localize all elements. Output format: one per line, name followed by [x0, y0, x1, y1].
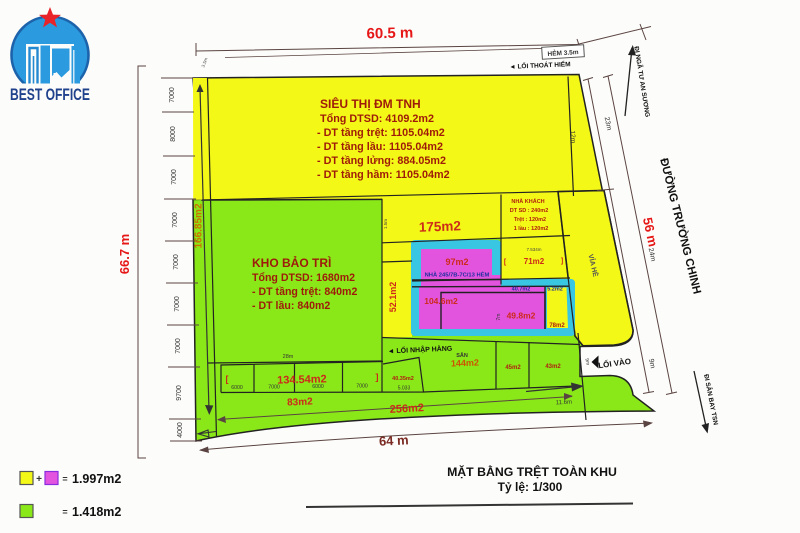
- svg-text:5.033: 5.033: [398, 386, 411, 392]
- svg-text:4000: 4000: [177, 422, 184, 438]
- svg-text:- DT tầng hầm: 1105.04m2: - DT tầng hầm: 1105.04m2: [317, 169, 450, 181]
- svg-text:Tổng DTSD: 1680m2: Tổng DTSD: 1680m2: [252, 272, 355, 284]
- svg-text:6000: 6000: [312, 384, 324, 390]
- svg-text:5.2m2: 5.2m2: [547, 287, 563, 293]
- svg-text:144m2: 144m2: [451, 358, 479, 369]
- svg-text:83m2: 83m2: [287, 396, 313, 408]
- svg-text:NHÀ 245/7B-7C/13 HẺM: NHÀ 245/7B-7C/13 HẺM: [425, 272, 490, 279]
- svg-text:7000: 7000: [174, 296, 181, 312]
- svg-text:9700: 9700: [176, 385, 183, 401]
- svg-text:- DT tầng lửng: 884.05m2: - DT tầng lửng: 884.05m2: [317, 155, 446, 167]
- svg-text:7000: 7000: [175, 338, 182, 354]
- svg-text:+: +: [36, 474, 42, 485]
- svg-text:KHO BẢO TRÌ: KHO BẢO TRÌ: [252, 255, 331, 270]
- svg-text:- DT tầng lầu: 1105.04m2: - DT tầng lầu: 1105.04m2: [317, 141, 443, 153]
- svg-text:7000: 7000: [173, 254, 180, 270]
- svg-text:BEST OFFICE: BEST OFFICE: [10, 86, 90, 104]
- svg-text:64 m: 64 m: [379, 432, 409, 449]
- svg-text:]: ]: [376, 372, 379, 382]
- svg-text:1 lầu : 120m2: 1 lầu : 120m2: [514, 226, 549, 232]
- svg-text:NHÀ KHÁCH: NHÀ KHÁCH: [511, 198, 544, 205]
- svg-text:7000: 7000: [268, 385, 280, 391]
- svg-text:49.8m2: 49.8m2: [507, 311, 536, 321]
- svg-text:28m: 28m: [283, 354, 294, 360]
- svg-text:166.85m2: 166.85m2: [194, 203, 205, 248]
- svg-text:7000: 7000: [169, 87, 176, 103]
- svg-text:- DT tầng trệt: 840m2: - DT tầng trệt: 840m2: [252, 286, 357, 298]
- svg-text:9m: 9m: [583, 358, 590, 366]
- svg-text:175m2: 175m2: [419, 218, 462, 234]
- svg-text:12m: 12m: [569, 130, 577, 143]
- svg-text:[: [: [226, 374, 229, 384]
- svg-text:1.418m2: 1.418m2: [72, 505, 121, 519]
- svg-text:7000: 7000: [356, 384, 368, 390]
- svg-text:104.6m2: 104.6m2: [424, 296, 458, 306]
- svg-text:- DT lầu: 840m2: - DT lầu: 840m2: [252, 300, 330, 312]
- svg-text:7000: 7000: [171, 169, 178, 185]
- svg-text:Tỷ lệ: 1/300: Tỷ lệ: 1/300: [498, 480, 563, 494]
- svg-text:7.534m: 7.534m: [526, 247, 541, 252]
- svg-text:DT SD : 240m2: DT SD : 240m2: [510, 208, 549, 214]
- svg-text:1.997m2: 1.997m2: [72, 472, 121, 486]
- svg-text:Tổng DTSD: 4109.2m2: Tổng DTSD: 4109.2m2: [320, 113, 434, 125]
- svg-text:7000: 7000: [172, 212, 179, 228]
- svg-text:=: =: [62, 507, 67, 517]
- svg-text:=: =: [62, 474, 67, 484]
- svg-text:- DT tầng trệt: 1105.04m2: - DT tầng trệt: 1105.04m2: [317, 127, 445, 139]
- svg-text:8000: 8000: [170, 126, 177, 142]
- svg-text:78m2: 78m2: [549, 323, 565, 329]
- svg-text:52.1m2: 52.1m2: [388, 282, 398, 313]
- svg-text:7m: 7m: [496, 314, 502, 321]
- svg-text:71m2: 71m2: [524, 257, 545, 266]
- svg-text:Trệt : 120m2: Trệt : 120m2: [514, 217, 546, 223]
- svg-text:97m2: 97m2: [445, 257, 468, 267]
- svg-text:66.7 m: 66.7 m: [117, 234, 132, 274]
- svg-text:43m2: 43m2: [545, 364, 561, 370]
- svg-text:MẶT BẰNG TRỆT TOÀN KHU: MẶT BẰNG TRỆT TOÀN KHU: [447, 464, 617, 479]
- svg-text:SIÊU THỊ ĐM TNH: SIÊU THỊ ĐM TNH: [320, 96, 421, 111]
- svg-text:11.6m: 11.6m: [556, 400, 573, 407]
- svg-text:40.35m2: 40.35m2: [392, 376, 414, 382]
- svg-text:45m2: 45m2: [505, 365, 521, 371]
- svg-text:40.7m2: 40.7m2: [512, 287, 531, 293]
- svg-text:60.5 m: 60.5 m: [366, 24, 413, 42]
- svg-text:1.5m: 1.5m: [383, 219, 388, 229]
- svg-text:6000: 6000: [231, 385, 243, 391]
- svg-text:]: ]: [561, 258, 563, 265]
- svg-text:256m2: 256m2: [389, 402, 424, 416]
